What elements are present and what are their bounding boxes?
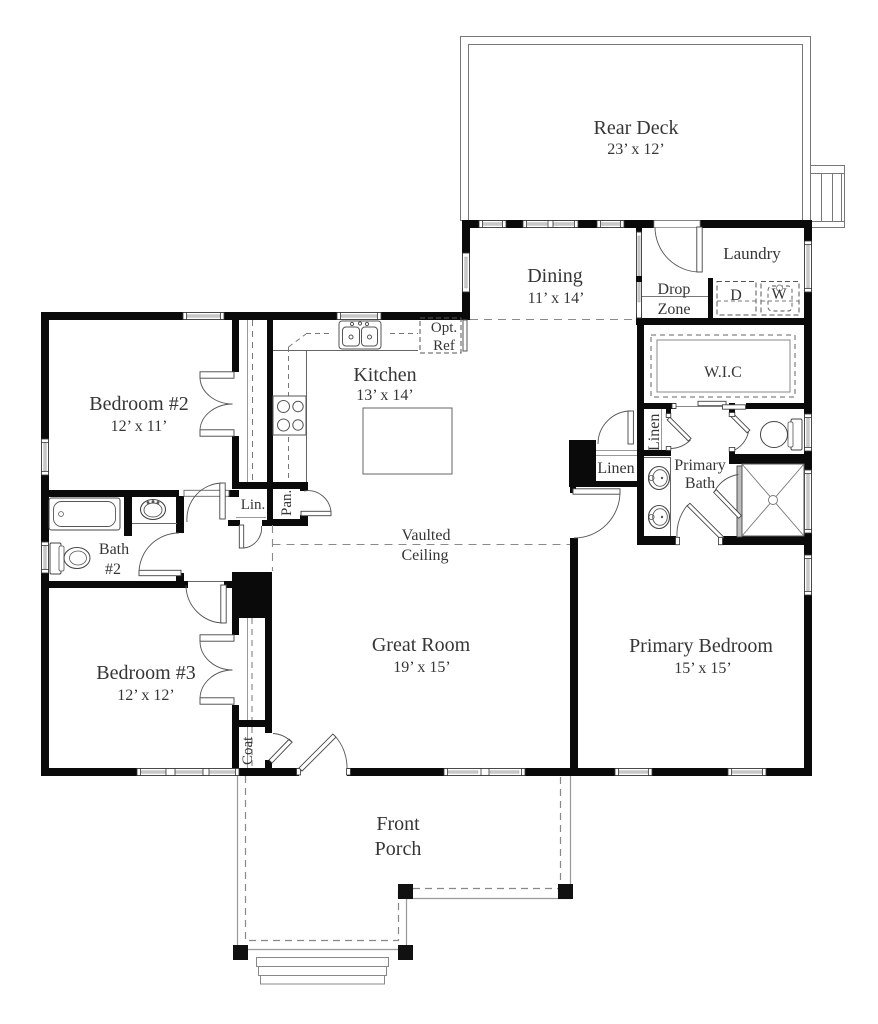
svg-text:W: W bbox=[771, 286, 787, 303]
svg-text:Zone: Zone bbox=[658, 301, 691, 318]
svg-text:23’ x 12’: 23’ x 12’ bbox=[607, 141, 664, 158]
svg-text:Vaulted: Vaulted bbox=[402, 527, 451, 544]
svg-text:Front: Front bbox=[376, 813, 420, 835]
svg-text:Kitchen: Kitchen bbox=[353, 364, 416, 386]
svg-text:Laundry: Laundry bbox=[723, 244, 781, 263]
svg-text:#2: #2 bbox=[105, 561, 121, 578]
svg-text:Bath: Bath bbox=[685, 475, 715, 492]
svg-text:Primary Bedroom: Primary Bedroom bbox=[629, 635, 773, 657]
svg-text:Ceiling: Ceiling bbox=[401, 547, 448, 564]
svg-text:15’ x 15’: 15’ x 15’ bbox=[674, 660, 731, 677]
svg-text:Coat: Coat bbox=[240, 736, 256, 765]
svg-text:11’ x 14’: 11’ x 14’ bbox=[528, 290, 585, 307]
svg-text:W.I.C: W.I.C bbox=[704, 364, 742, 381]
svg-text:12’ x 12’: 12’ x 12’ bbox=[117, 687, 174, 704]
svg-text:12’ x 11’: 12’ x 11’ bbox=[111, 418, 168, 435]
svg-text:19’ x 15’: 19’ x 15’ bbox=[393, 659, 450, 676]
svg-text:Lin.: Lin. bbox=[241, 497, 266, 513]
svg-text:13’ x 14’: 13’ x 14’ bbox=[356, 387, 413, 404]
svg-text:Pan.: Pan. bbox=[279, 490, 295, 516]
svg-text:Drop: Drop bbox=[658, 281, 691, 298]
svg-text:Primary: Primary bbox=[674, 457, 726, 474]
svg-text:Rear Deck: Rear Deck bbox=[594, 117, 679, 139]
svg-text:Linen: Linen bbox=[597, 460, 634, 477]
svg-text:D: D bbox=[730, 287, 742, 304]
svg-text:Bath: Bath bbox=[99, 541, 129, 558]
svg-text:Great Room: Great Room bbox=[372, 634, 471, 656]
svg-text:Opt.: Opt. bbox=[431, 320, 457, 336]
svg-text:Linen: Linen bbox=[646, 414, 663, 451]
svg-text:Ref: Ref bbox=[433, 338, 455, 354]
svg-text:Porch: Porch bbox=[375, 838, 422, 860]
svg-text:Bedroom #3: Bedroom #3 bbox=[96, 662, 195, 684]
svg-text:Bedroom #2: Bedroom #2 bbox=[89, 393, 188, 415]
svg-text:Dining: Dining bbox=[527, 265, 583, 287]
